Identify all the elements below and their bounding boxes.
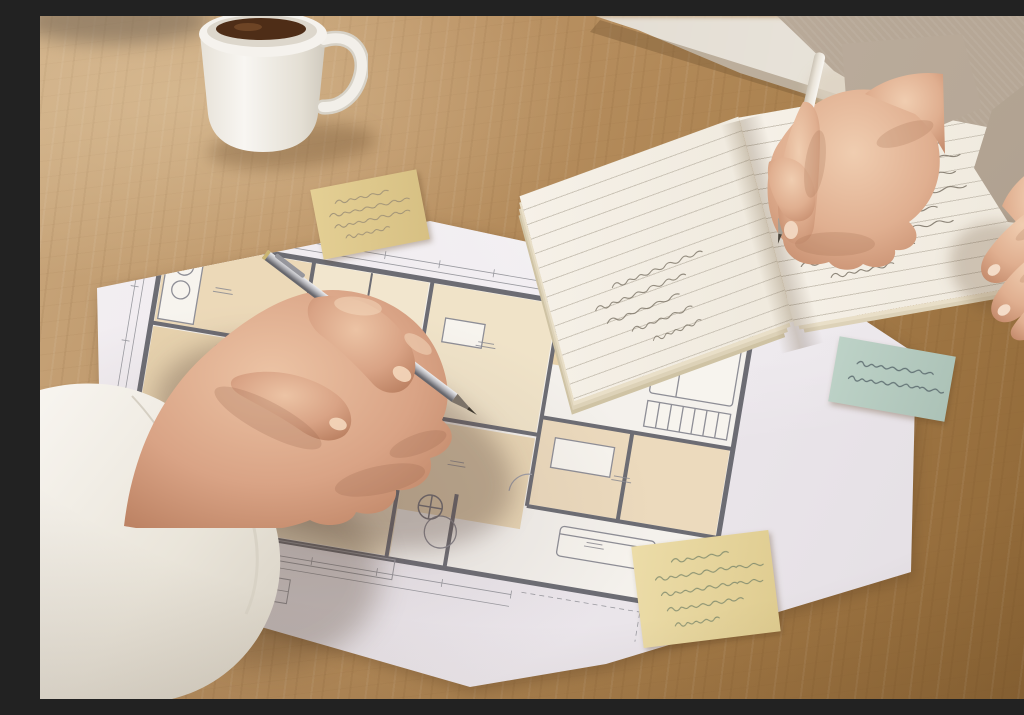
silver-pen-cone <box>452 394 477 416</box>
silver-pen-tip <box>467 407 478 416</box>
index-fingernail <box>784 221 798 239</box>
person-right-writing-hand <box>685 44 945 274</box>
person-left-pointing-hand <box>118 248 498 528</box>
photo-scene: Two people review a hand-drawn architect… <box>40 16 1024 699</box>
person-right-resting-hand <box>938 156 1024 341</box>
sticky-note-bottom <box>631 530 780 648</box>
white-pen-tip <box>776 234 782 245</box>
sticky-note-handwriting <box>631 530 780 648</box>
